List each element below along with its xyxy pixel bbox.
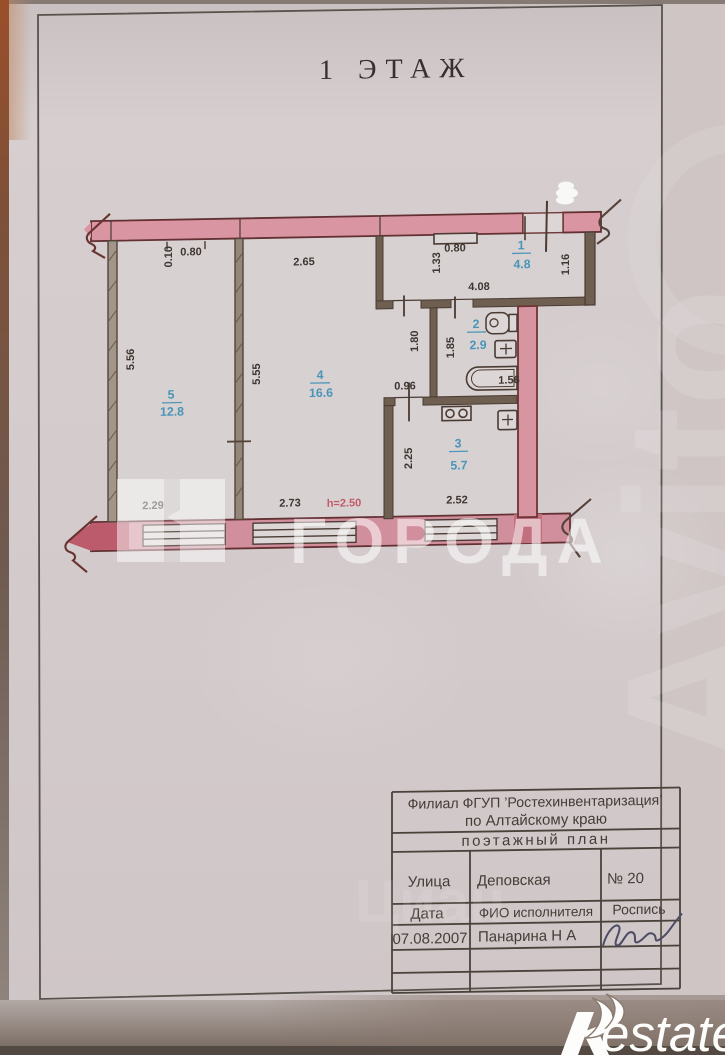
svg-text:0.10: 0.10: [163, 246, 175, 268]
svg-text:2.25: 2.25: [403, 448, 415, 470]
svg-text:поэтажный план: поэтажный план: [462, 831, 611, 850]
svg-text:0.80: 0.80: [180, 246, 201, 258]
svg-text:по Алтайскому краю: по Алтайскому краю: [465, 811, 607, 830]
svg-text:4.08: 4.08: [468, 281, 489, 293]
svg-text:1.85: 1.85: [445, 337, 457, 359]
svg-text:2: 2: [473, 317, 480, 331]
svg-text:1.56: 1.56: [498, 374, 519, 386]
svg-text:Циан: Циан: [355, 868, 505, 935]
svg-text:4: 4: [317, 368, 324, 382]
svg-text:ГОРОДА: ГОРОДА: [290, 505, 612, 577]
svg-text:1.80: 1.80: [409, 330, 421, 352]
svg-text:5: 5: [168, 388, 175, 402]
svg-text:5.7: 5.7: [450, 458, 467, 472]
svg-text:estate: estate: [601, 1005, 725, 1055]
svg-text:5.55: 5.55: [251, 363, 263, 385]
svg-text:2.65: 2.65: [293, 256, 314, 268]
svg-text:№ 20: № 20: [607, 870, 644, 888]
svg-text:1 ЭТАЖ: 1 ЭТАЖ: [319, 53, 474, 86]
svg-text:1.16: 1.16: [560, 254, 572, 276]
svg-text:12.8: 12.8: [160, 404, 184, 418]
svg-text:Роспись: Роспись: [612, 901, 665, 918]
svg-text:2.9: 2.9: [469, 338, 486, 352]
svg-text:1.33: 1.33: [431, 252, 443, 274]
svg-text:Avito: Avito: [586, 288, 725, 768]
svg-text:5.56: 5.56: [125, 349, 137, 371]
svg-text:3: 3: [455, 436, 462, 450]
svg-text:0.80: 0.80: [444, 242, 465, 254]
svg-text:1: 1: [518, 238, 525, 252]
svg-text:0.96: 0.96: [394, 380, 415, 392]
svg-text:4.8: 4.8: [513, 257, 530, 271]
svg-text:16.6: 16.6: [309, 386, 333, 400]
